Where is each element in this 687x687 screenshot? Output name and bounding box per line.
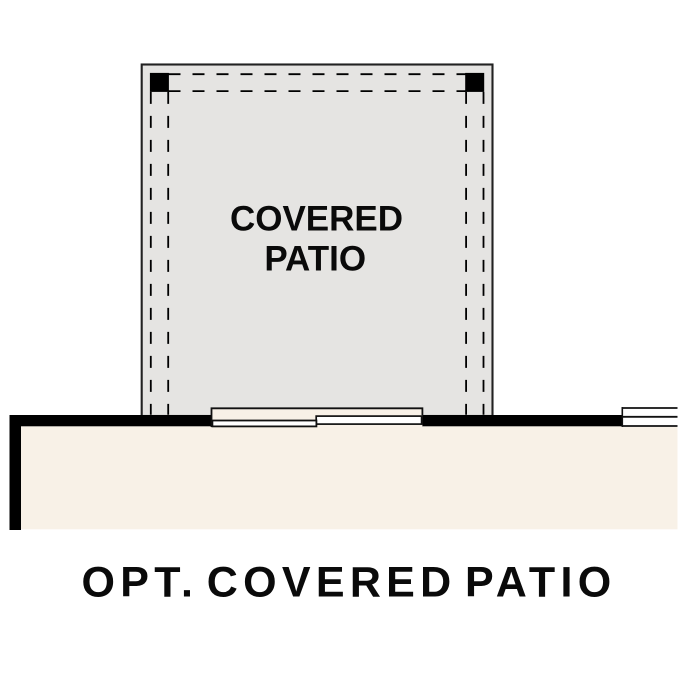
svg-text:COVERED: COVERED [230, 200, 403, 239]
svg-text:OPT. COVERED PATIO: OPT. COVERED PATIO [82, 559, 617, 607]
svg-text:PATIO: PATIO [264, 239, 366, 278]
